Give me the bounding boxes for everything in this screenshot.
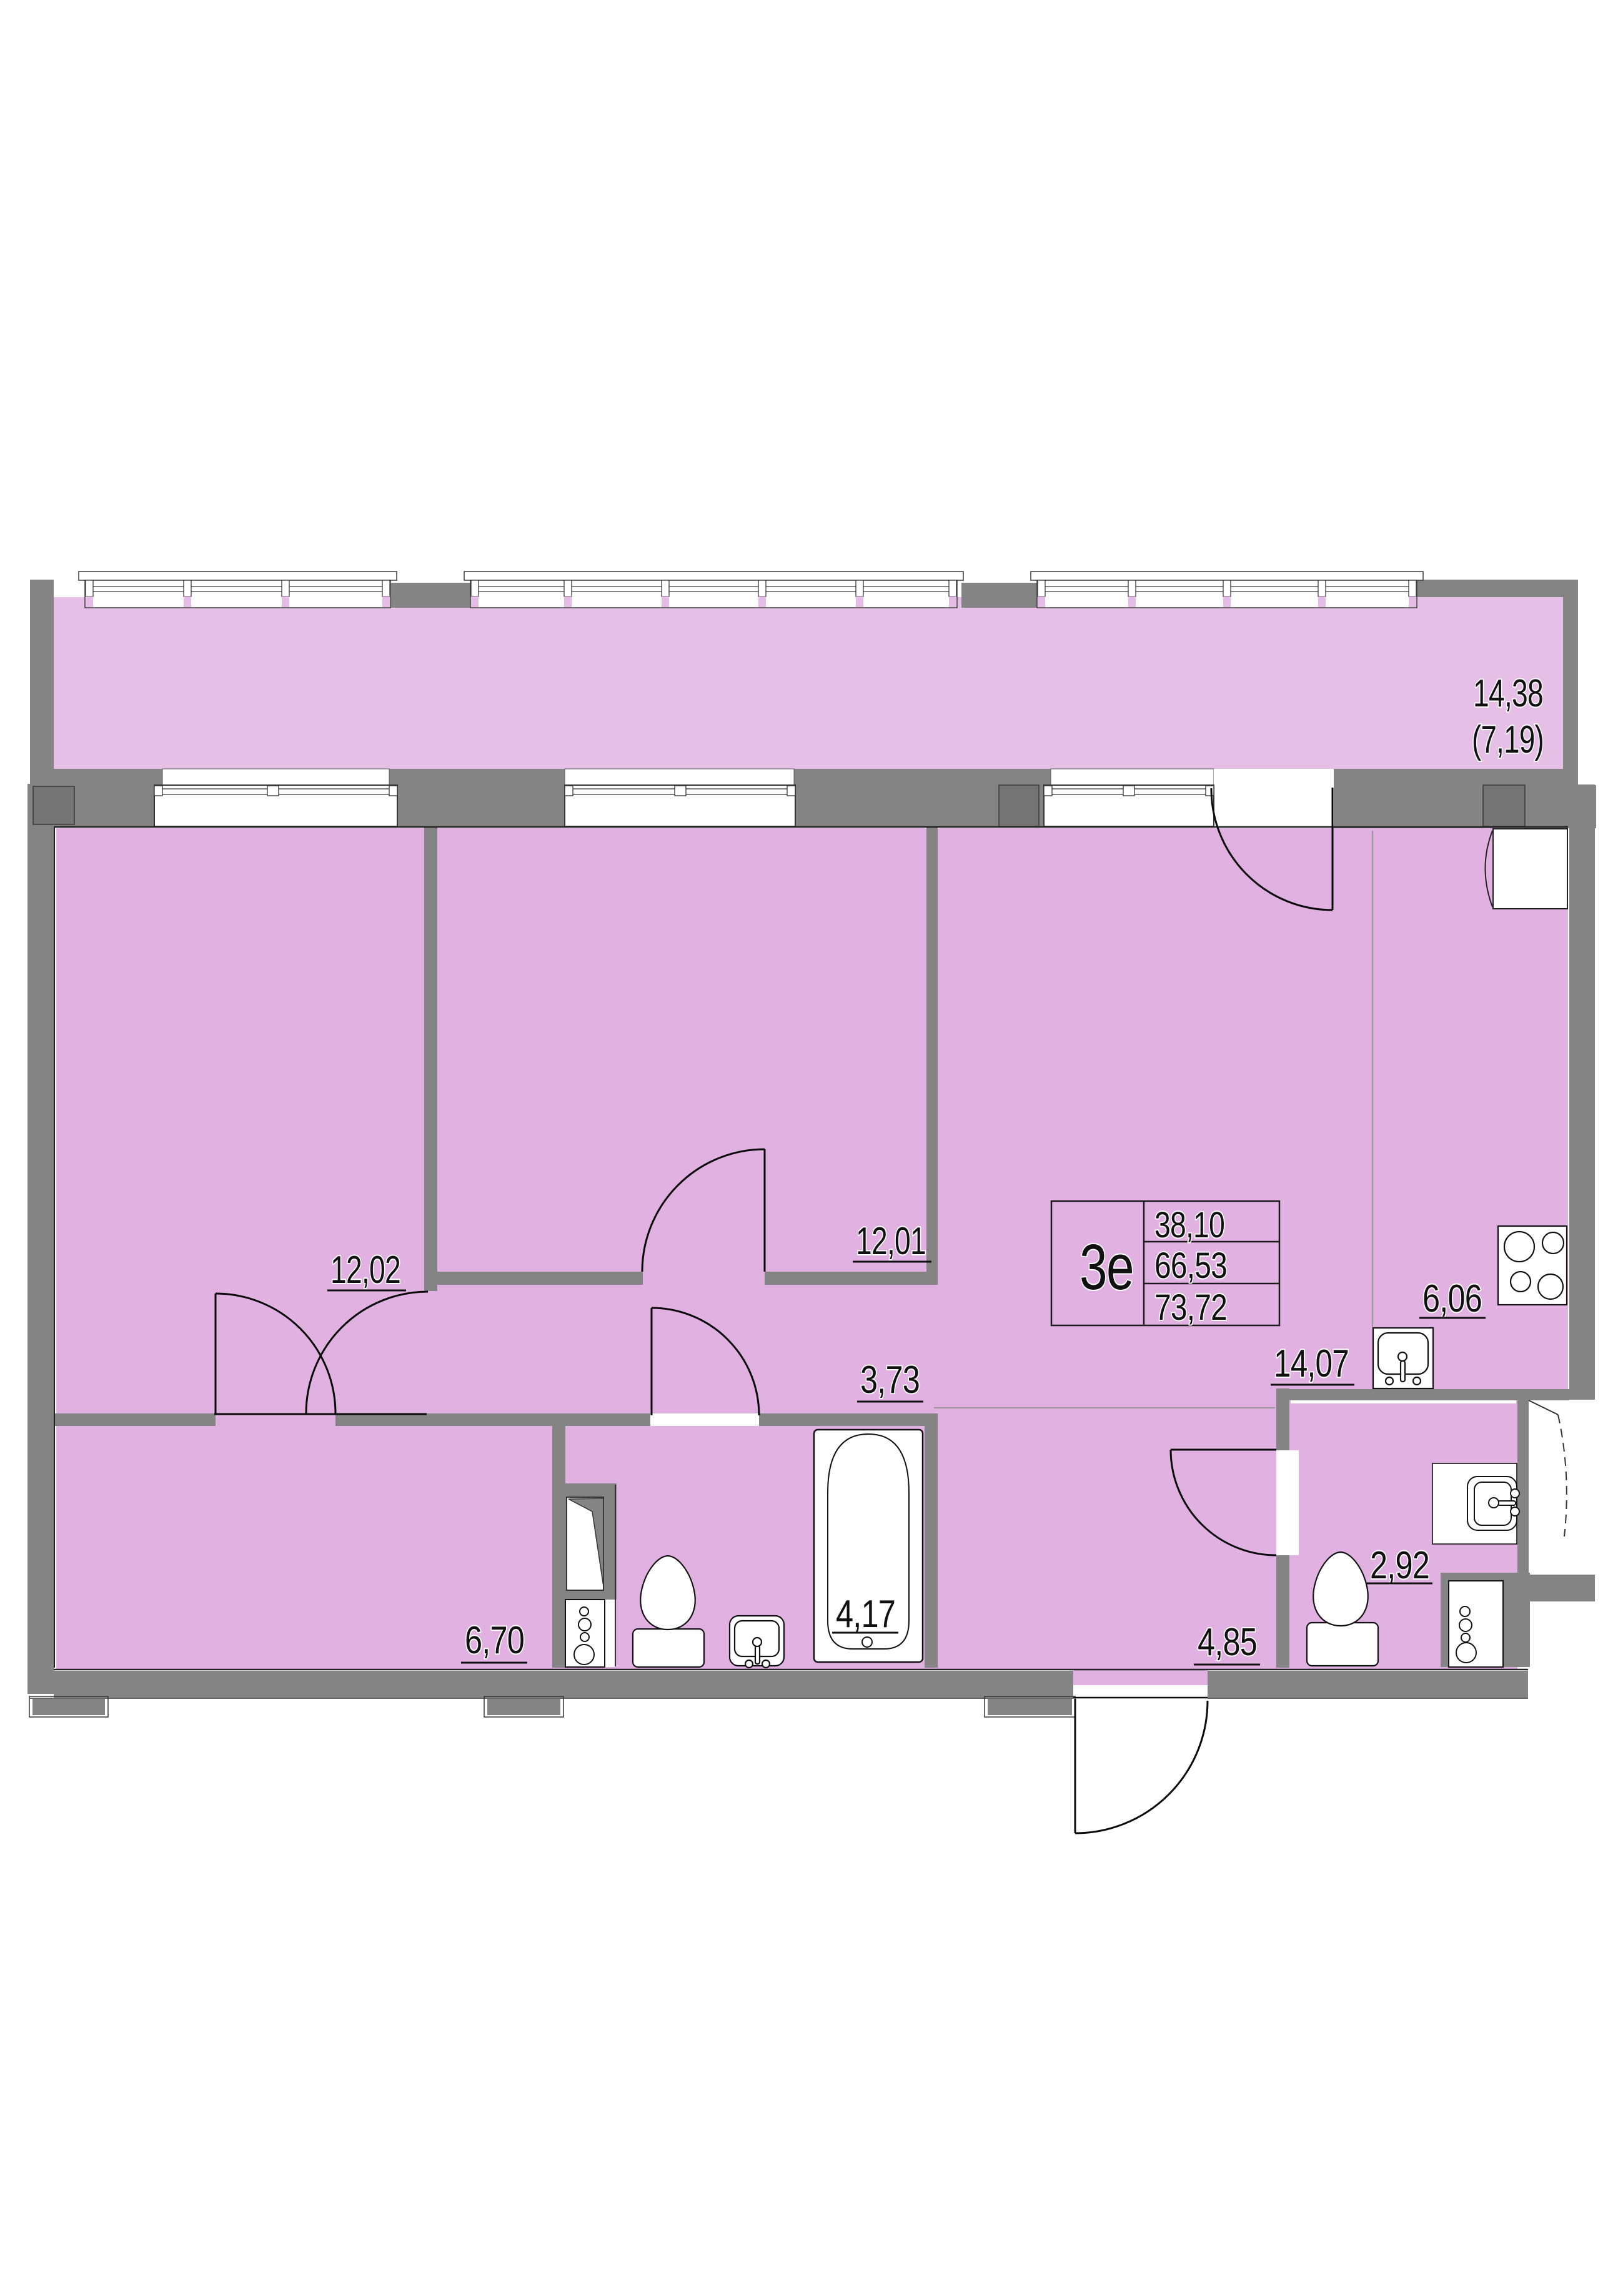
svg-text:3,73: 3,73 <box>860 1358 920 1402</box>
svg-text:4,17: 4,17 <box>836 1593 895 1636</box>
svg-text:12,02: 12,02 <box>330 1249 400 1292</box>
svg-text:66,53: 66,53 <box>1154 1245 1227 1286</box>
svg-text:6,70: 6,70 <box>465 1619 524 1662</box>
svg-text:4,85: 4,85 <box>1198 1621 1257 1664</box>
svg-text:73,72: 73,72 <box>1154 1287 1227 1328</box>
svg-text:3е: 3е <box>1080 1231 1133 1303</box>
svg-text:14,38: 14,38 <box>1473 672 1543 715</box>
svg-text:(7,19): (7,19) <box>1472 718 1544 761</box>
svg-text:2,92: 2,92 <box>1370 1544 1429 1587</box>
svg-text:6,06: 6,06 <box>1422 1277 1482 1320</box>
svg-text:38,10: 38,10 <box>1154 1205 1224 1245</box>
svg-text:12,01: 12,01 <box>856 1220 926 1263</box>
svg-text:14,07: 14,07 <box>1274 1342 1349 1385</box>
